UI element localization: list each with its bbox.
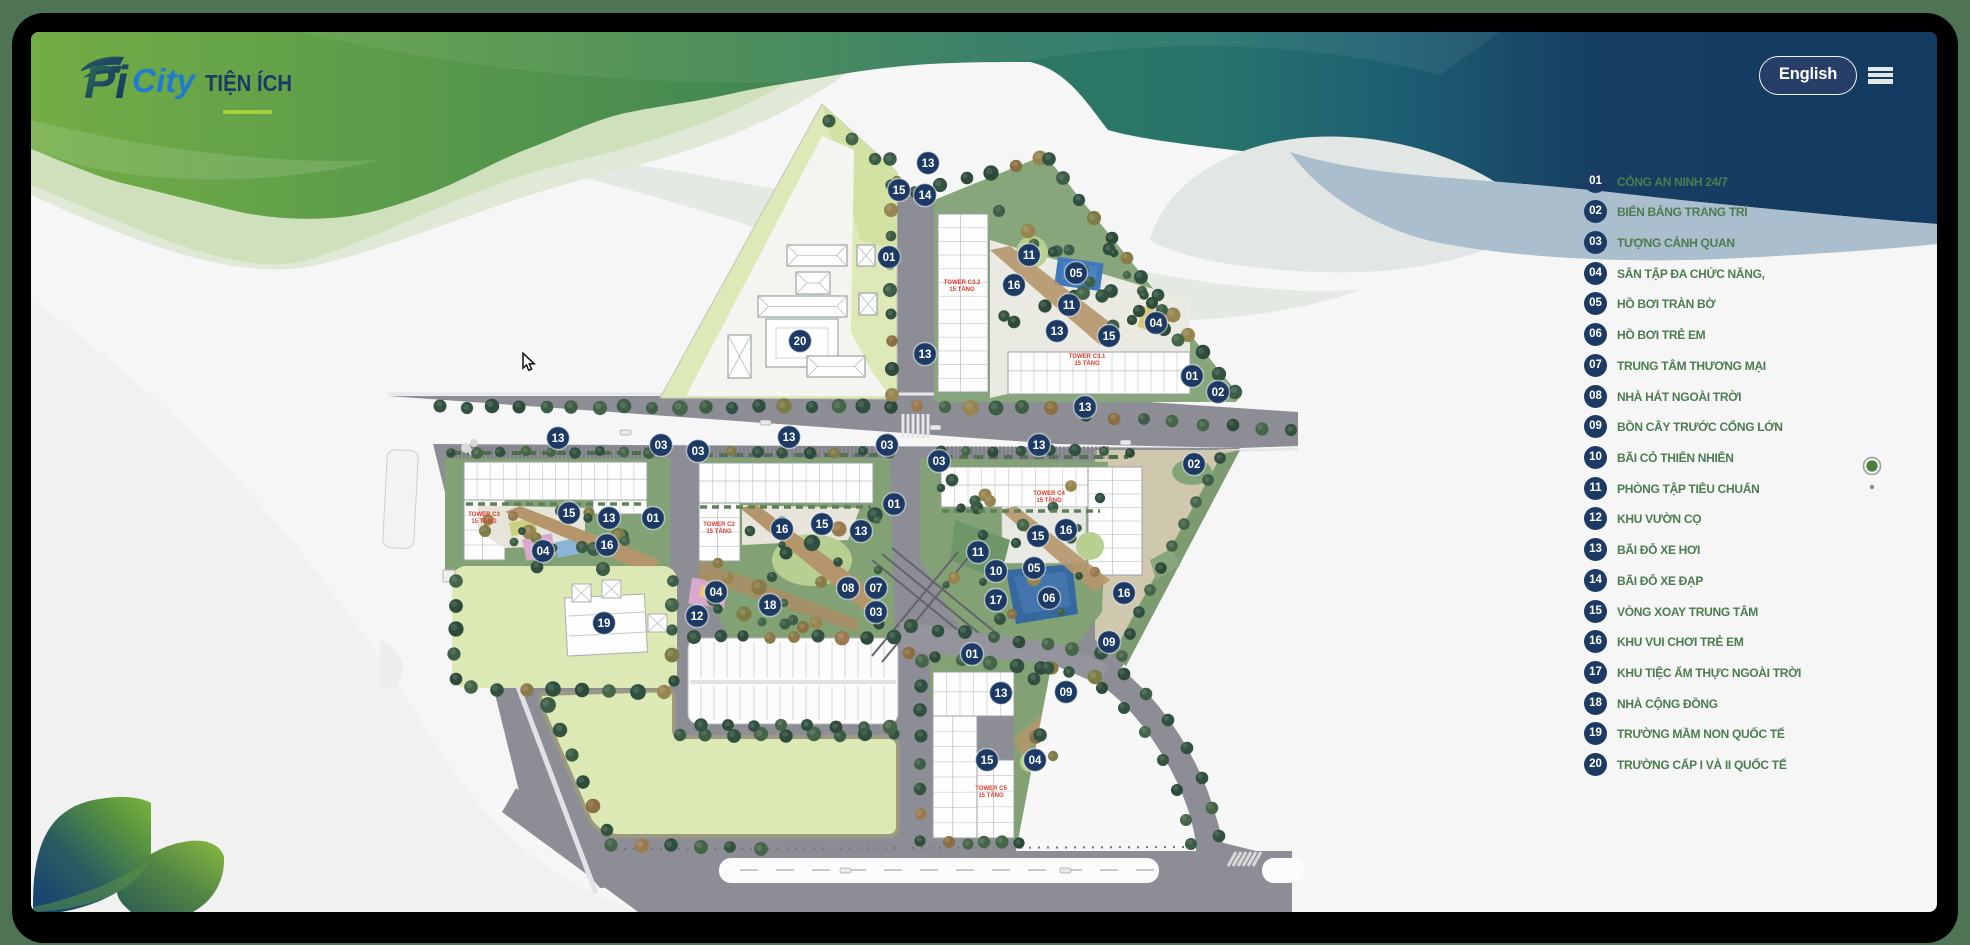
svg-text:01: 01	[883, 252, 896, 264]
svg-text:01: 01	[966, 649, 979, 661]
svg-text:16: 16	[1008, 280, 1021, 292]
svg-text:15 TẦNG: 15 TẦNG	[706, 528, 732, 535]
svg-text:03: 03	[655, 440, 668, 452]
svg-text:09: 09	[1103, 637, 1116, 649]
svg-text:11: 11	[1063, 300, 1076, 312]
svg-text:13: 13	[922, 158, 935, 170]
svg-text:10: 10	[990, 566, 1003, 578]
svg-text:06: 06	[1043, 593, 1056, 605]
svg-text:11: 11	[972, 547, 985, 559]
svg-text:01: 01	[888, 499, 901, 511]
svg-text:13: 13	[855, 526, 868, 538]
svg-text:16: 16	[776, 524, 789, 536]
svg-text:15 TẦNG: 15 TẦNG	[1036, 497, 1062, 504]
svg-text:15 TẦNG: 15 TẦNG	[471, 518, 497, 525]
svg-text:02: 02	[1188, 459, 1201, 471]
svg-text:12: 12	[691, 611, 704, 623]
svg-text:15: 15	[816, 519, 829, 531]
svg-text:18: 18	[764, 600, 777, 612]
svg-text:04: 04	[1029, 755, 1042, 767]
svg-text:15 TẦNG: 15 TẦNG	[978, 792, 1004, 799]
svg-text:15 TẦNG: 15 TẦNG	[949, 286, 975, 293]
svg-text:15: 15	[981, 755, 994, 767]
svg-text:13: 13	[919, 349, 932, 361]
svg-text:15 TẦNG: 15 TẦNG	[1074, 360, 1100, 367]
svg-text:TOWER C3.2: TOWER C3.2	[944, 280, 981, 286]
svg-text:15: 15	[1103, 331, 1116, 343]
svg-text:20: 20	[794, 336, 807, 348]
svg-text:15: 15	[1032, 531, 1045, 543]
svg-text:07: 07	[870, 583, 883, 595]
svg-text:03: 03	[692, 446, 705, 458]
svg-text:03: 03	[870, 607, 883, 619]
svg-text:03: 03	[881, 440, 894, 452]
svg-text:15: 15	[563, 508, 576, 520]
svg-text:04: 04	[1150, 318, 1163, 330]
svg-text:TOWER C2: TOWER C2	[703, 522, 735, 528]
svg-text:03: 03	[933, 456, 946, 468]
svg-text:TOWER C4: TOWER C4	[1033, 491, 1065, 497]
svg-text:02: 02	[1212, 387, 1225, 399]
svg-text:17: 17	[990, 595, 1003, 607]
svg-text:TOWER C3: TOWER C3	[468, 512, 500, 518]
svg-text:13: 13	[1051, 326, 1064, 338]
svg-text:13: 13	[783, 432, 796, 444]
svg-text:13: 13	[552, 433, 565, 445]
svg-text:16: 16	[1118, 588, 1131, 600]
svg-text:11: 11	[1023, 250, 1036, 262]
svg-text:09: 09	[1060, 687, 1073, 699]
svg-text:16: 16	[1060, 525, 1073, 537]
svg-text:04: 04	[710, 587, 723, 599]
svg-text:13: 13	[1033, 440, 1046, 452]
svg-text:05: 05	[1028, 563, 1041, 575]
svg-text:TOWER C5: TOWER C5	[975, 786, 1007, 792]
svg-text:14: 14	[919, 190, 932, 202]
svg-text:16: 16	[601, 540, 614, 552]
svg-text:13: 13	[603, 513, 616, 525]
svg-text:TOWER C3.1: TOWER C3.1	[1069, 354, 1106, 360]
svg-text:13: 13	[995, 688, 1008, 700]
svg-text:08: 08	[842, 583, 855, 595]
svg-text:13: 13	[1079, 402, 1092, 414]
svg-text:01: 01	[1186, 371, 1199, 383]
svg-text:01: 01	[647, 513, 660, 525]
svg-text:04: 04	[537, 546, 550, 558]
svg-text:15: 15	[893, 185, 906, 197]
svg-text:19: 19	[598, 618, 611, 630]
svg-text:05: 05	[1070, 268, 1083, 280]
